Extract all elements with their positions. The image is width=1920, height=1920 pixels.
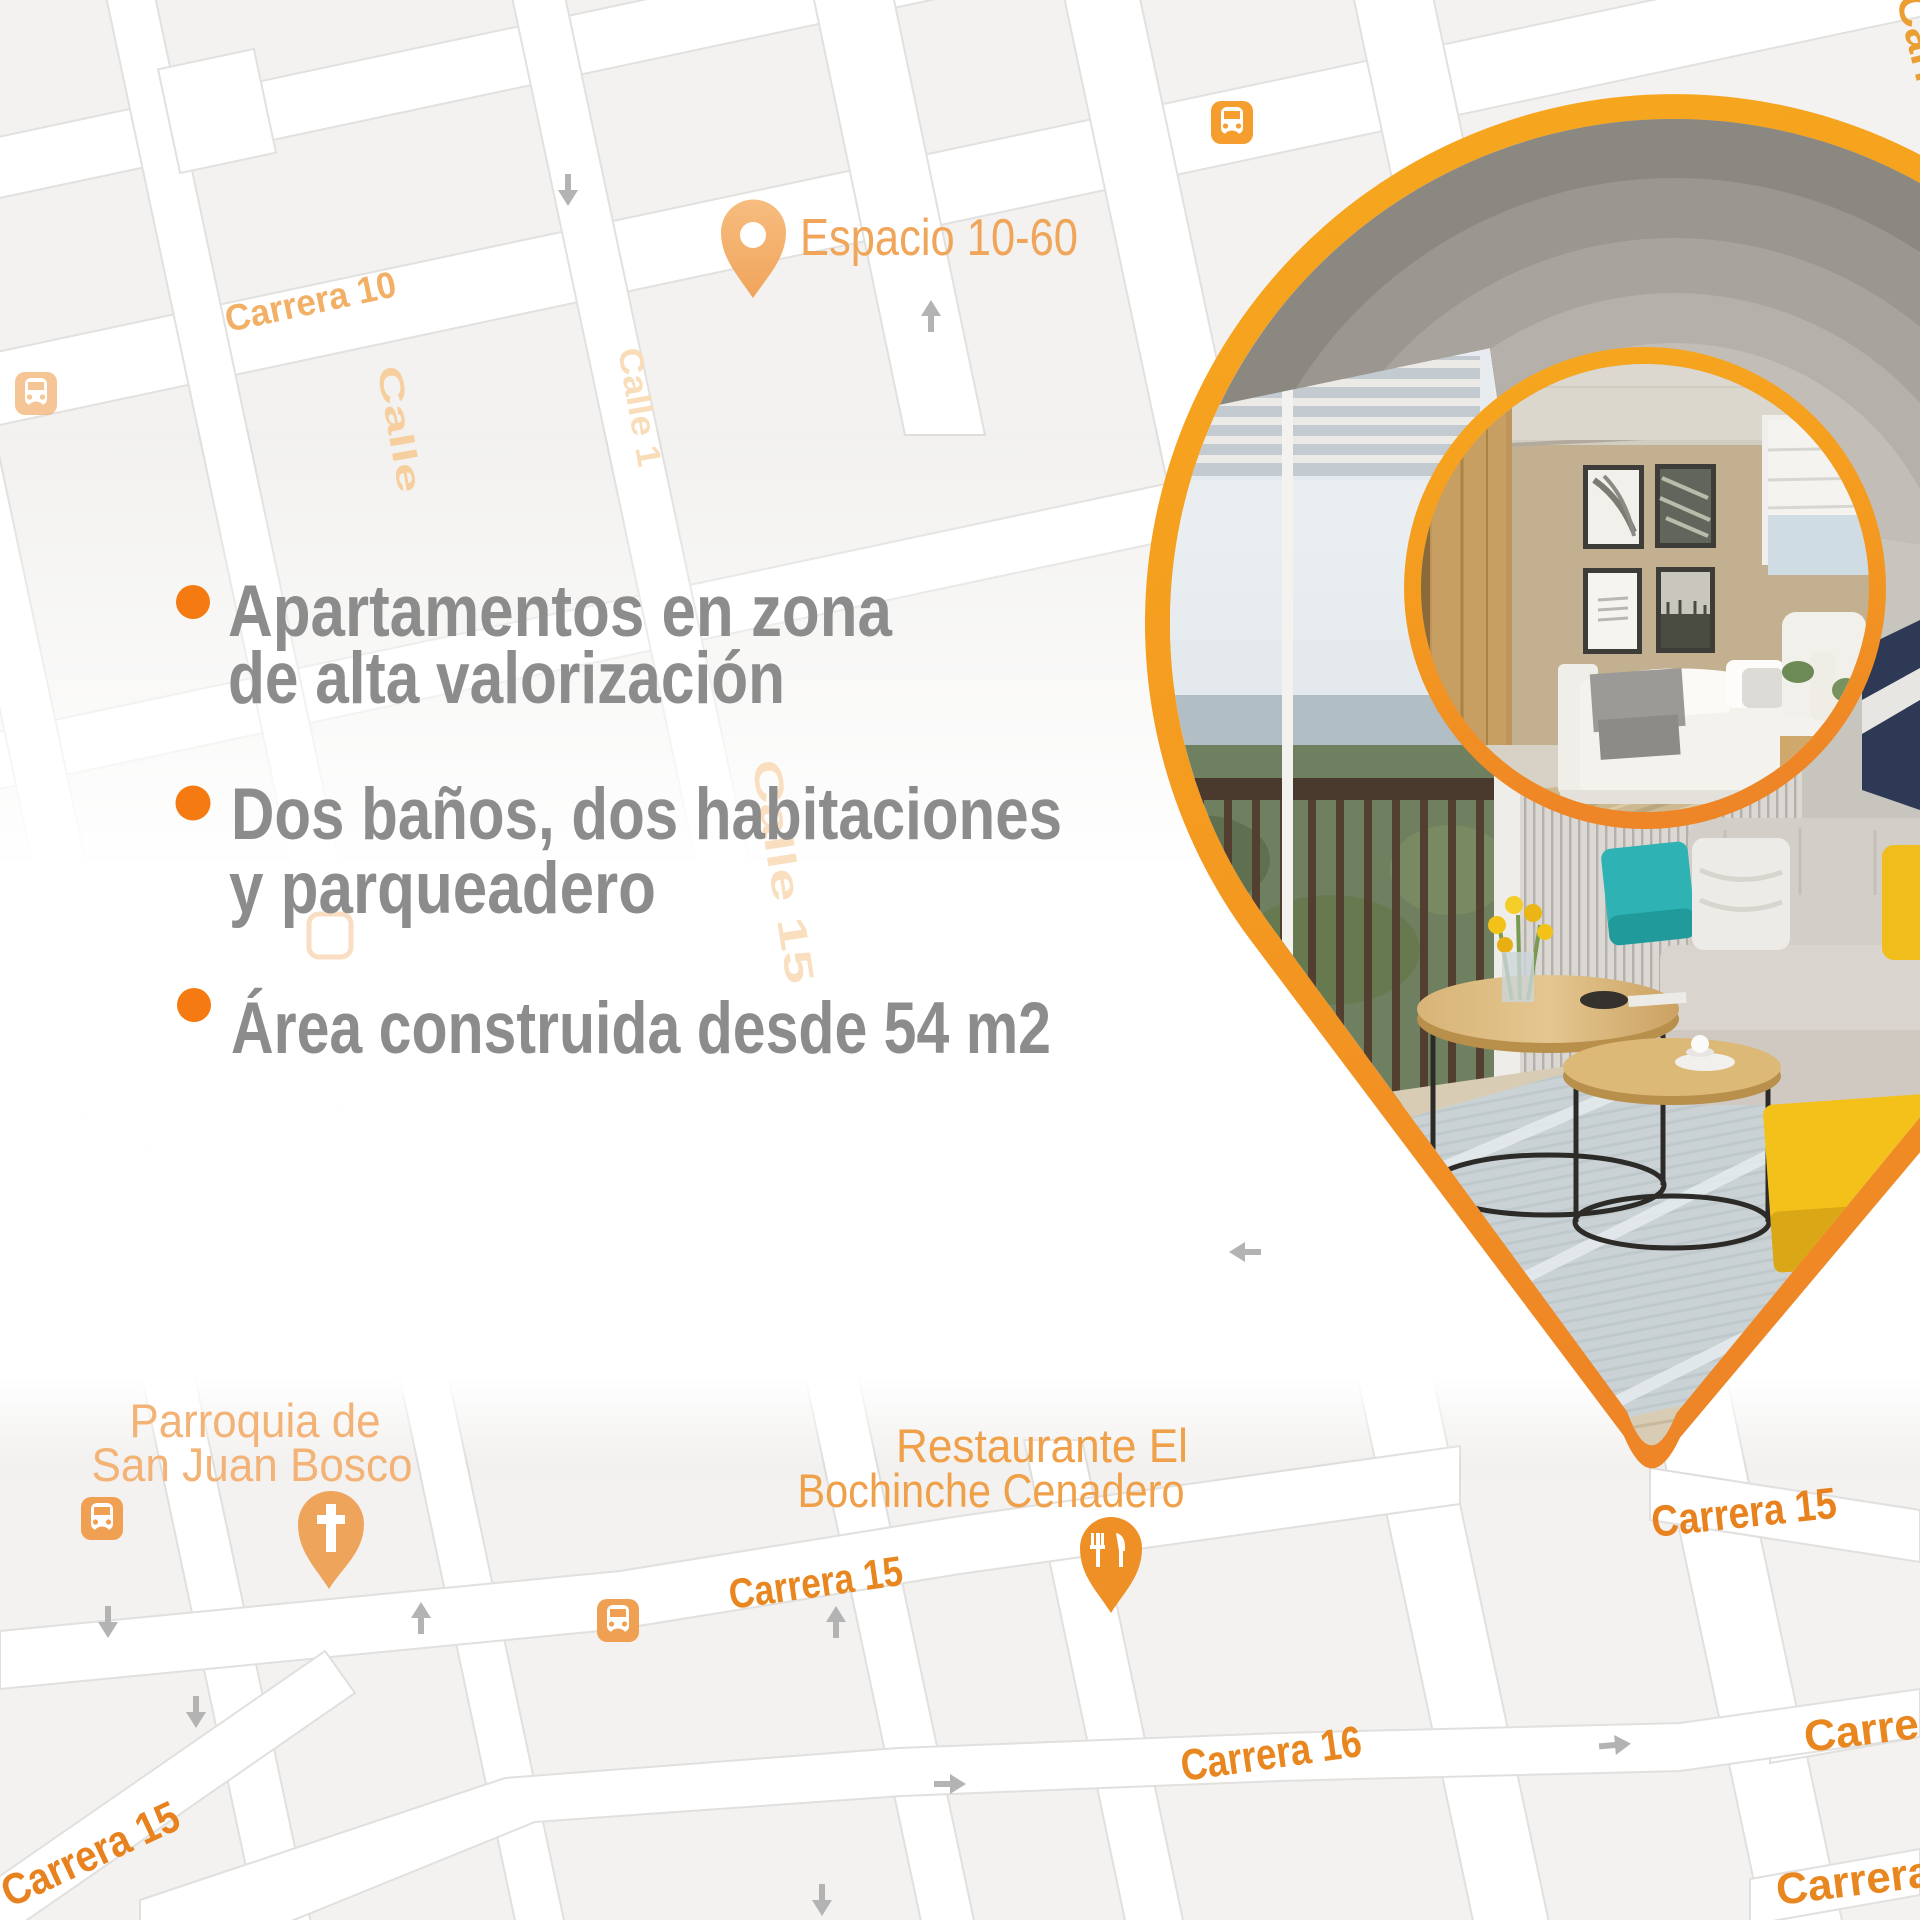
svg-text:Dos baños, dos habitaciones: Dos baños, dos habitaciones bbox=[231, 774, 1062, 855]
svg-text:San Juan Bosco: San Juan Bosco bbox=[92, 1438, 413, 1491]
svg-text:de alta valorización: de alta valorización bbox=[228, 638, 785, 719]
svg-text:Bochinche Cenadero: Bochinche Cenadero bbox=[798, 1464, 1185, 1517]
svg-text:Espacio 10-60: Espacio 10-60 bbox=[800, 209, 1078, 267]
svg-text:y parqueadero: y parqueadero bbox=[229, 848, 656, 929]
svg-text:Área construida desde 54 m2: Área construida desde 54 m2 bbox=[231, 988, 1051, 1069]
